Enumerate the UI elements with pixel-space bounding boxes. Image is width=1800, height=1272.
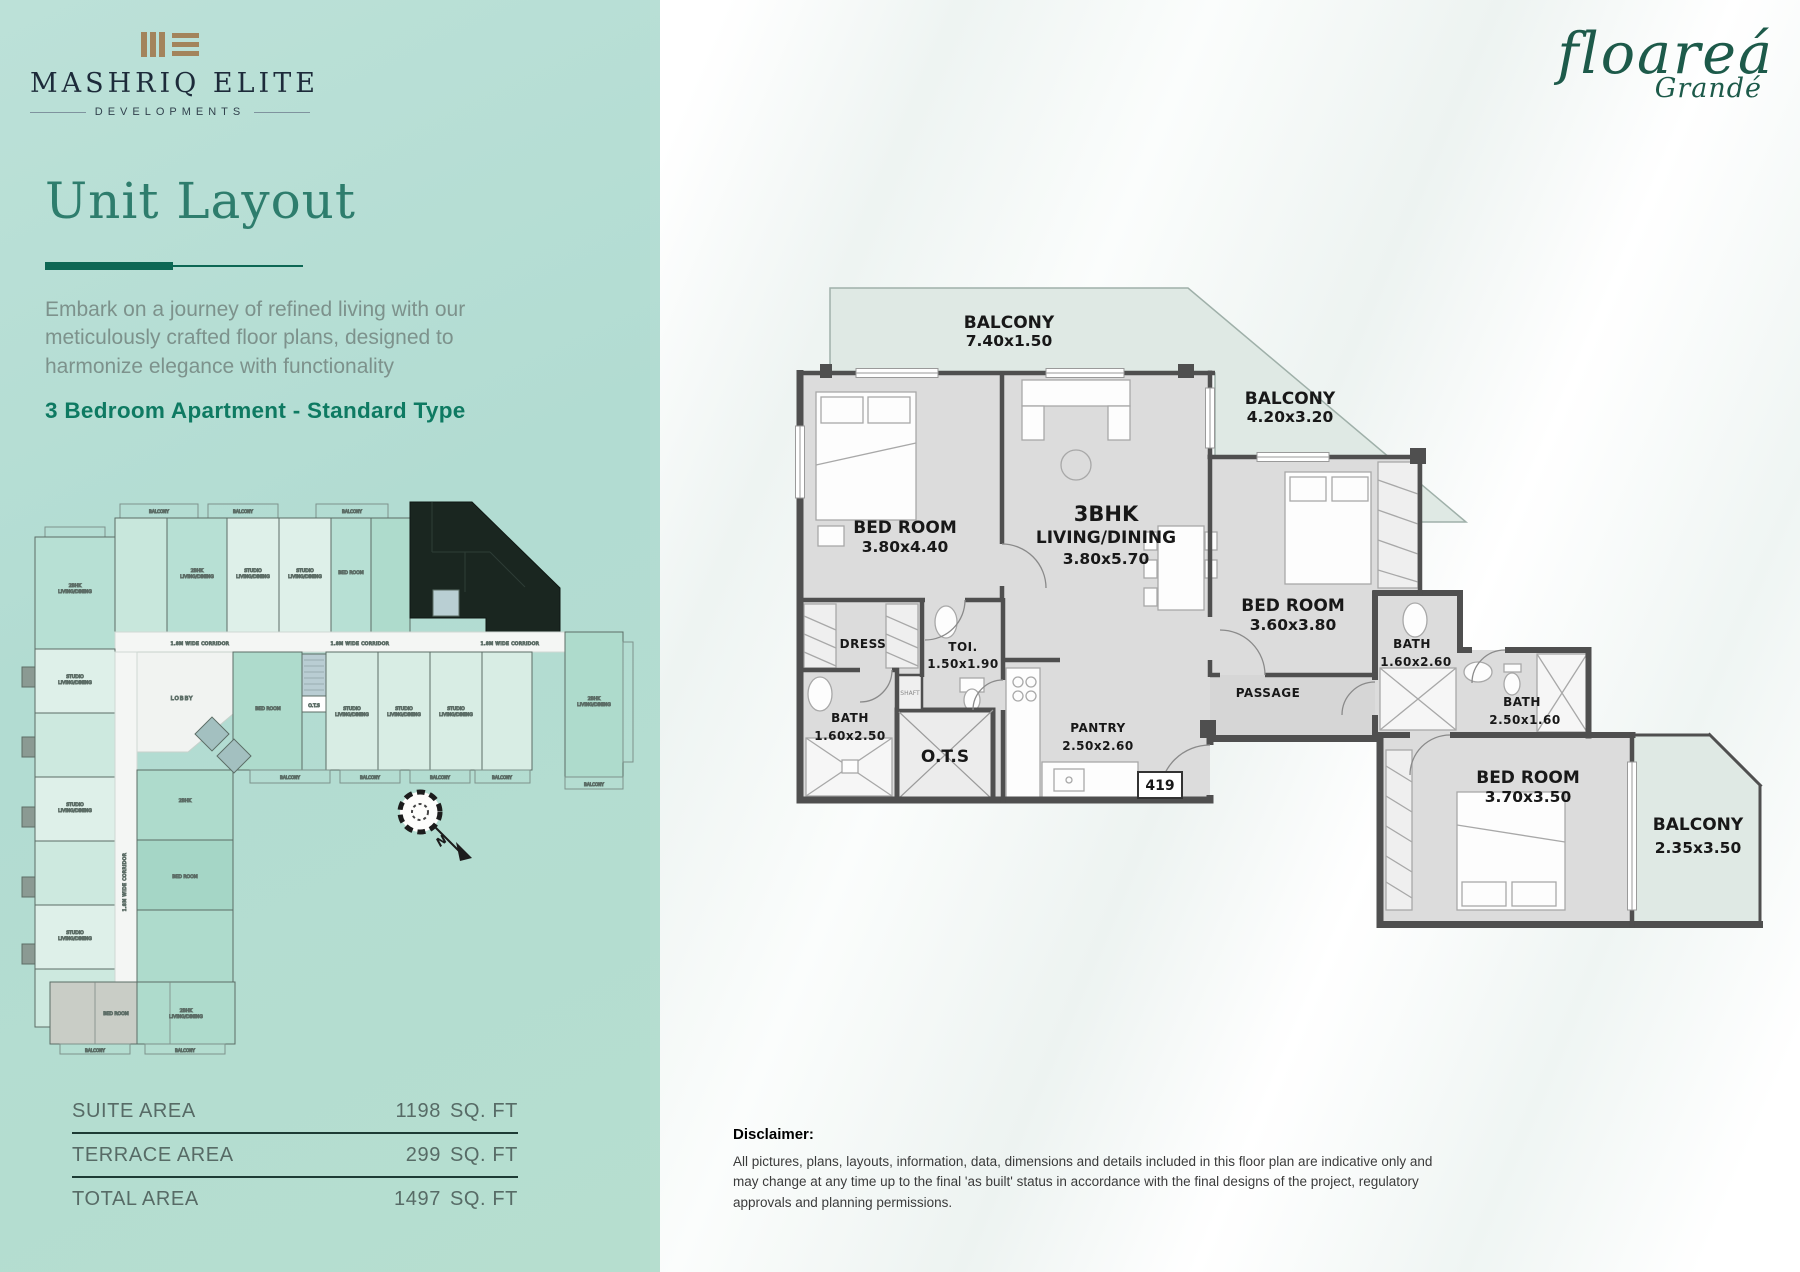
room-dims-bath2: 1.60x2.60 <box>1380 655 1451 669</box>
key-balcony-label: BALCONY <box>492 775 512 780</box>
developer-logo-icon <box>30 30 310 58</box>
key-balcony-label: BALCONY <box>360 775 380 780</box>
key-plan-row2-units <box>233 632 633 777</box>
unit-floor-plan: 419 BALCONY 7.40x1.50 BALCONY 4.20x3.20 … <box>760 280 1770 950</box>
key-unit-label: LIVING/DINING <box>335 712 369 718</box>
logo-bars-vertical <box>141 32 165 57</box>
area-unit: SQ. FT <box>450 1144 518 1167</box>
room-label-bath2: BATH <box>1393 637 1431 651</box>
project-logo: floareá Grandé <box>1557 26 1774 104</box>
unit-number-plate: 419 <box>1138 772 1182 798</box>
room-dims-bath3: 2.50x1.60 <box>1489 713 1560 727</box>
key-unit-label: 2BHK <box>180 1008 194 1014</box>
key-unit-label: 2BHK <box>179 798 193 804</box>
compass-icon: N <box>400 792 472 861</box>
room-label-balcony-top: BALCONY <box>964 313 1055 333</box>
key-unit-label: LIVING/DINING <box>288 574 322 580</box>
room-dims-pantry: 2.50x2.60 <box>1062 739 1133 753</box>
divider-line <box>30 112 86 113</box>
area-unit: SQ. FT <box>450 1188 518 1211</box>
area-value: 1497 <box>394 1188 441 1211</box>
page-title: Unit Layout <box>45 172 356 230</box>
room-dims-bath1: 1.60x2.50 <box>814 729 885 743</box>
key-unit-label: LIVING/DINING <box>58 589 92 595</box>
key-plan-highlighted-unit <box>410 502 560 632</box>
key-unit-label: BED ROOM <box>255 706 280 712</box>
key-unit-label: STUDIO <box>343 706 361 712</box>
room-dims-bedroom2: 3.60x3.80 <box>1250 616 1337 634</box>
key-balcony-label: BALCONY <box>149 509 169 514</box>
key-corridor-label: 1.8M WIDE CORRIDOR <box>481 641 540 647</box>
key-balcony-label: BALCONY <box>430 775 450 780</box>
key-balcony-label: BALCONY <box>584 782 604 787</box>
area-table: SUITE AREA 1198 SQ. FT TERRACE AREA 299 … <box>72 1090 518 1220</box>
key-unit-label: LIVING/DINING <box>58 680 92 686</box>
room-dims-bedroom3: 3.70x3.50 <box>1485 788 1572 806</box>
room-label-bedroom3: BED ROOM <box>1476 768 1580 788</box>
room-dims-bedroom1: 3.80x4.40 <box>862 538 949 556</box>
area-value: 1198 <box>396 1100 441 1123</box>
room-label-bedroom1: BED ROOM <box>853 518 957 538</box>
room-dims-living: 3.80x5.70 <box>1063 550 1150 568</box>
room-dims-toi: 1.50x1.90 <box>927 657 998 671</box>
key-unit-label: LIVING/DINING <box>387 712 421 718</box>
title-underline <box>45 262 303 270</box>
room-label-dress: DRESS <box>840 637 887 651</box>
key-unit-label: STUDIO <box>395 706 413 712</box>
disclaimer: Disclaimer: All pictures, plans, layouts… <box>733 1126 1433 1213</box>
logo-bars-horizontal <box>172 33 199 56</box>
key-plan-bottom-wing <box>50 982 235 1054</box>
room-dims-balcony3: 2.35x3.50 <box>1655 839 1742 857</box>
room-dims-balcony-right: 4.20x3.20 <box>1247 408 1334 426</box>
key-unit-label: LIVING/DINING <box>58 936 92 942</box>
room-label-passage: PASSAGE <box>1236 686 1301 700</box>
room-label-ots: O.T.S <box>921 747 969 767</box>
room-label-living: LIVING/DINING <box>1036 528 1176 548</box>
table-row: TOTAL AREA 1497 SQ. FT <box>72 1178 518 1220</box>
key-corridor-label: 1.8M WIDE CORRIDOR <box>171 641 230 647</box>
key-unit-label: LIVING/DINING <box>169 1014 203 1020</box>
table-row: SUITE AREA 1198 SQ. FT <box>72 1090 518 1134</box>
developer-name: MASHRIQ ELITE <box>30 68 310 99</box>
key-unit-label: STUDIO <box>66 802 84 808</box>
unit-type-heading: 3 Bedroom Apartment - Standard Type <box>45 398 466 424</box>
divider-line <box>254 112 310 113</box>
room-label-toi: TOI. <box>948 640 977 654</box>
key-balcony-label: BALCONY <box>85 1048 105 1053</box>
area-label: SUITE AREA <box>72 1100 196 1123</box>
building-key-plan: BALCONY BALCONY BALCONY 2BHK LIVING/DINI… <box>20 482 660 1078</box>
key-unit-label: LIVING/DINING <box>439 712 473 718</box>
key-unit-label: LIVING/DINING <box>236 574 270 580</box>
room-label-balcony3: BALCONY <box>1653 815 1744 835</box>
key-unit-label: 2BHK <box>191 568 205 574</box>
key-unit-label: LIVING/DINING <box>577 702 611 708</box>
key-unit-label: BED ROOM <box>103 1011 128 1017</box>
key-unit-label: LIVING/DINING <box>180 574 214 580</box>
room-label-living-type: 3BHK <box>1074 502 1139 526</box>
room-label-bath1: BATH <box>831 711 869 725</box>
key-unit-label: BED ROOM <box>338 570 363 576</box>
key-unit-label: STUDIO <box>447 706 465 712</box>
sidebar-panel: MASHRIQ ELITE DEVELOPMENTS Unit Layout E… <box>0 0 660 1272</box>
key-ots-label: O.T.S <box>308 703 320 709</box>
key-unit-label: 2BHK <box>69 583 83 589</box>
room-label-pantry: PANTRY <box>1070 721 1125 735</box>
room-label-bath3: BATH <box>1503 695 1541 709</box>
room-label-shaft: SHAFT <box>900 690 920 697</box>
table-row: TERRACE AREA 299 SQ. FT <box>72 1134 518 1178</box>
room-label-bedroom2: BED ROOM <box>1241 596 1345 616</box>
key-balcony-label: BALCONY <box>342 509 362 514</box>
key-unit-label: BED ROOM <box>172 874 197 880</box>
key-unit-label: LIVING/DINING <box>58 808 92 814</box>
key-corridor-label: 1.8M WIDE CORRIDOR <box>331 641 390 647</box>
area-label: TERRACE AREA <box>72 1144 234 1167</box>
unit-number: 419 <box>1145 778 1174 794</box>
intro-text: Embark on a journey of refined living wi… <box>45 296 530 381</box>
key-balcony-label: BALCONY <box>175 1048 195 1053</box>
disclaimer-title: Disclaimer: <box>733 1126 1433 1143</box>
developer-subtitle-text: DEVELOPMENTS <box>95 106 245 118</box>
key-unit-label: STUDIO <box>296 568 314 574</box>
key-unit-label: STUDIO <box>244 568 262 574</box>
key-unit-label: STUDIO <box>66 930 84 936</box>
key-lobby-label: LOBBY <box>171 696 194 702</box>
area-unit: SQ. FT <box>450 1100 518 1123</box>
key-unit-label: STUDIO <box>66 674 84 680</box>
key-plan-top-units <box>35 518 410 649</box>
developer-logo: MASHRIQ ELITE DEVELOPMENTS <box>30 30 310 118</box>
developer-subtitle: DEVELOPMENTS <box>30 106 310 118</box>
title-underline-thick <box>45 262 173 270</box>
room-label-balcony-right: BALCONY <box>1245 389 1336 409</box>
key-balcony-label: BALCONY <box>233 509 253 514</box>
key-unit-label: 2BHK <box>588 696 602 702</box>
area-label: TOTAL AREA <box>72 1188 199 1211</box>
room-dims-balcony-top: 7.40x1.50 <box>966 332 1053 350</box>
area-value: 299 <box>406 1144 441 1167</box>
key-balcony-label: BALCONY <box>280 775 300 780</box>
compass-north-label: N <box>433 832 450 849</box>
key-corridor-label: 1.8M WIDE CORRIDOR <box>122 852 128 911</box>
disclaimer-text: All pictures, plans, layouts, informatio… <box>733 1152 1433 1213</box>
